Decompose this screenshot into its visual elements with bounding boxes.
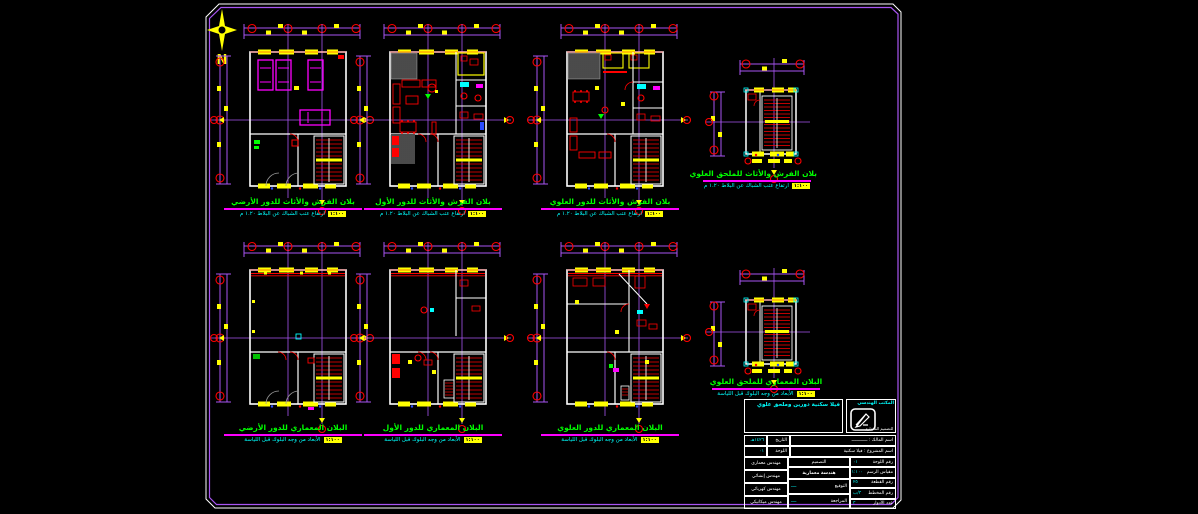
plan-subtitle: الأبعاد من وجه البلوك قبل اللياسة (244, 437, 320, 443)
title-underline (541, 208, 679, 210)
office-subtitle: للتصميم المعماري (865, 426, 893, 431)
date-label: التاريخ (767, 435, 790, 446)
title-block-header: فيلا سكنية دورين وملحق علوي (744, 399, 843, 433)
engineer-row: مهندس كهربائي (744, 483, 788, 496)
scale-chip: ١:١٠٠ (645, 211, 663, 218)
plan-label-8: البلان المعماري للملحق العلوي ١:١٠٠الأبع… (706, 378, 826, 397)
plan-upper-arch[interactable] (525, 240, 695, 445)
field-row: مقياس الرسم١:١٠٠ (850, 467, 896, 477)
plan-title: بلان الفرش والأثاث للدور العلوي (535, 198, 685, 207)
field-row: عدد الأدوار٣ (850, 499, 896, 509)
plan-title: بلان الفرش والأثاث للدور الأرضي (218, 198, 368, 207)
plan-title: البلان المعماري للدور الأول (358, 424, 508, 433)
project-row: اسم المشروع : فيلا سكنية (790, 446, 896, 457)
scale-chip: ١:١٠٠ (641, 437, 659, 444)
plan-subtitle: ارتفاع عتب الشباك عن البلاط ١.٢٠ م (380, 211, 465, 217)
engineer-row: مهندس ميكانيكي (744, 496, 788, 509)
project-title: فيلا سكنية دورين وملحق علوي (757, 402, 840, 408)
plan-subtitle: الأبعاد من وجه البلوك قبل اللياسة (384, 437, 460, 443)
title-underline (703, 180, 811, 182)
scale-chip: ١:١٠٠ (328, 211, 346, 218)
title-block: فيلا سكنية دورين وملحق علوي المكتب الهند… (744, 399, 896, 509)
discipline-row: هندسة معمارية (788, 467, 850, 479)
plan-subtitle: ارتفاع عتب الشباك عن البلاط ١.٢٠ م (704, 183, 789, 189)
plan-label-1: بلان الفرش والأثاث للدور الأرضي ١:١٠٠ارت… (218, 198, 368, 217)
plan-label-4: بلان الفرش والأثاث للملحق العلوي ١:١٠٠ار… (697, 170, 817, 189)
plan-label-6: البلان المعماري للدور الأول ١:١٠٠الأبعاد… (358, 424, 508, 443)
field-row: رقم القطعة٢٥ (850, 478, 896, 488)
plan-subtitle: الأبعاد من وجه البلوك قبل اللياسة (561, 437, 637, 443)
plan-title: بلان الفرش والأثاث للدور الأول (358, 198, 508, 207)
cad-model-space: { "palette":{ "background":"#000000","fr… (0, 0, 1198, 514)
title-underline (541, 434, 679, 436)
title-underline (224, 434, 362, 436)
title-underline (364, 208, 502, 210)
mid-pair-row: التوقيعــــ (788, 479, 850, 494)
scale-chip: ١:١٠٠ (464, 437, 482, 444)
scale-chip: ١:١٠٠ (792, 183, 810, 190)
scale-chip: ١:١٠٠ (324, 437, 342, 444)
scale-chip: ١:١٠٠ (468, 211, 486, 218)
plan-label-2: بلان الفرش والأثاث للدور الأول ١:١٠٠ارتف… (358, 198, 508, 217)
office-logo-box: المكتب الهندسي للتصميم المعماري (846, 399, 896, 433)
office-name: المكتب الهندسي (857, 401, 894, 406)
engineer-row: مهندس معماري (744, 457, 788, 470)
plan-title: البلان المعماري للدور الأرضي (218, 424, 368, 433)
engineer-row: مهندس إنشائي (744, 470, 788, 483)
field-row: رقم اللوحة٠١ (850, 457, 896, 467)
plan-subtitle: الأبعاد من وجه البلوك قبل اللياسة (717, 391, 793, 397)
plan-title: البلان المعماري للملحق العلوي (706, 378, 826, 387)
plan-first-arch[interactable] (348, 240, 518, 445)
plan-label-3: بلان الفرش والأثاث للدور العلوي ١:١٠٠ارت… (535, 198, 685, 217)
plan-subtitle: ارتفاع عتب الشباك عن البلاط ١.٢٠ م (557, 211, 642, 217)
title-underline (712, 388, 820, 390)
plan-subtitle: ارتفاع عتب الشباك عن البلاط ١.٢٠ م (240, 211, 325, 217)
sheet-label: اللوحة (767, 446, 790, 457)
date-value: ١٤٢٦هـ (744, 435, 767, 446)
field-row: رقم المخطط٣/ب (850, 488, 896, 498)
design-row: التصميم (788, 457, 850, 467)
title-underline (224, 208, 362, 210)
owner-row: اسم المالك : ــــــــــــ (790, 435, 896, 446)
plan-label-5: البلان المعماري للدور الأرضي ١:١٠٠الأبعا… (218, 424, 368, 443)
title-underline (364, 434, 502, 436)
plan-title: البلان المعماري للدور العلوي (535, 424, 685, 433)
mid-pair-row: المراجعةــــ (788, 494, 850, 509)
plan-title: بلان الفرش والأثاث للملحق العلوي (697, 170, 817, 179)
plan-label-7: البلان المعماري للدور العلوي ١:١٠٠الأبعا… (535, 424, 685, 443)
scale-chip: ١:١٠٠ (797, 391, 815, 398)
sheet-value: ٠١ (744, 446, 767, 457)
